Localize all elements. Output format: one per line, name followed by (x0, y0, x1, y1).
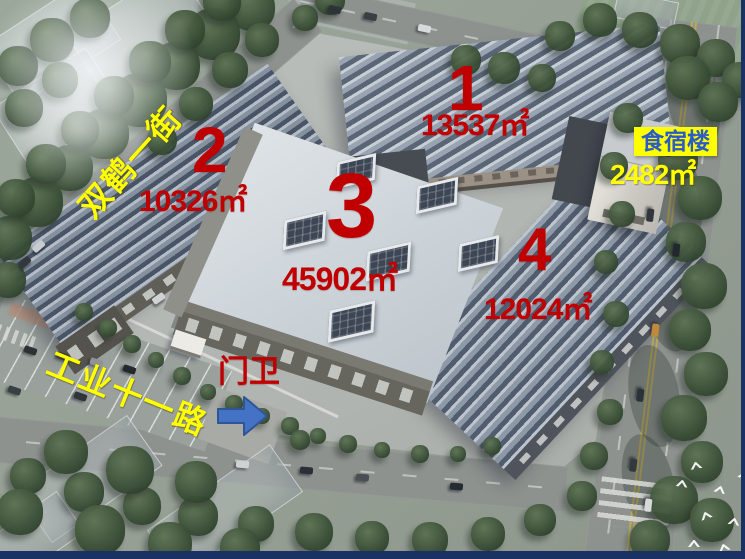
tree (690, 498, 734, 542)
car (651, 323, 659, 337)
building-4-area: 12024㎡ (484, 295, 591, 325)
tree (698, 82, 738, 122)
tree (594, 250, 618, 274)
tree (661, 395, 707, 441)
canteen-badge: 食宿楼 (634, 127, 717, 156)
bird (713, 485, 726, 495)
tree (450, 446, 466, 462)
tree (583, 3, 617, 37)
tree (75, 505, 125, 555)
tree (622, 12, 658, 48)
tree (173, 367, 191, 385)
tree (245, 23, 279, 57)
tree (684, 352, 728, 396)
arrow-right-icon (216, 393, 270, 439)
tree (175, 461, 217, 503)
aerial-site-render: 1 13537㎡ 2 10326㎡ 3 45902㎡ 4 12024㎡ 食宿楼 … (0, 0, 745, 559)
tree (488, 52, 520, 84)
tree (471, 517, 505, 551)
car (644, 498, 652, 512)
tree (483, 437, 501, 455)
bird (688, 540, 700, 547)
car (235, 460, 249, 468)
car (646, 208, 654, 222)
tree (669, 309, 711, 351)
car (629, 458, 637, 472)
border-bottom (0, 551, 745, 559)
tree (681, 441, 723, 483)
car (355, 473, 369, 481)
tree (295, 513, 333, 551)
tree (597, 399, 623, 425)
tree (292, 5, 318, 31)
building-3-number: 3 (326, 160, 377, 252)
building-4-number: 4 (518, 220, 551, 280)
gatehouse-label: 门卫 (218, 356, 280, 387)
tree (603, 301, 629, 327)
canteen-area: 2482㎡ (610, 161, 695, 189)
tree (355, 521, 389, 555)
tree (290, 430, 310, 450)
tree (609, 201, 635, 227)
building-3-area: 45902㎡ (282, 263, 397, 295)
tree (123, 335, 141, 353)
tree (339, 435, 357, 453)
tree (148, 352, 164, 368)
building-2-number: 2 (192, 118, 228, 182)
tree (75, 303, 93, 321)
tree (590, 350, 614, 374)
car (299, 466, 313, 474)
tree (524, 504, 556, 536)
car (636, 388, 644, 402)
tree (44, 430, 88, 474)
tree (374, 442, 390, 458)
tree (545, 21, 575, 51)
building-2-area: 10326㎡ (139, 187, 246, 217)
tree (681, 263, 727, 309)
tree (310, 428, 326, 444)
car (449, 482, 463, 490)
tree (580, 442, 608, 470)
tree (99, 319, 117, 337)
border-right (741, 0, 745, 559)
tree (411, 445, 429, 463)
tree (200, 384, 216, 400)
tree (0, 489, 43, 535)
car (672, 243, 680, 257)
building-1-area: 13537㎡ (421, 111, 528, 141)
tree (528, 64, 556, 92)
tree (106, 446, 154, 494)
tree (567, 481, 597, 511)
